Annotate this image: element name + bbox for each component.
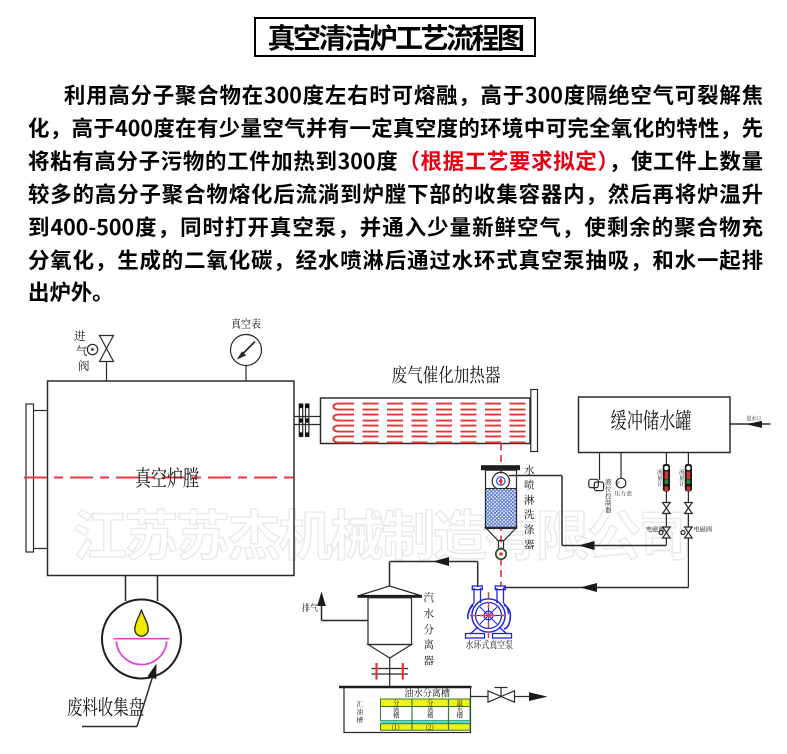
svg-text:器: 器 — [524, 537, 535, 552]
svg-text:压力表: 压力表 — [615, 489, 633, 498]
svg-text:排气: 排气 — [302, 601, 318, 614]
svg-text:器: 器 — [605, 505, 612, 514]
svg-text:(2): (2) — [426, 723, 434, 732]
svg-text:气: 气 — [76, 343, 88, 359]
svg-text:槽: 槽 — [457, 711, 464, 720]
svg-text:缓冲储水罐: 缓冲储水罐 — [611, 405, 692, 436]
svg-text:(1): (1) — [392, 723, 400, 732]
svg-text:计: 计 — [657, 480, 663, 488]
svg-text:器: 器 — [424, 653, 435, 668]
svg-text:槽: 槽 — [393, 711, 400, 720]
svg-text:电磁阀: 电磁阀 — [646, 525, 665, 534]
svg-text:涤: 涤 — [524, 522, 535, 537]
svg-text:进水口: 进水口 — [747, 414, 762, 423]
svg-text:分: 分 — [424, 622, 435, 637]
svg-text:电磁阀: 电磁阀 — [694, 525, 713, 534]
svg-text:真空炉膛: 真空炉膛 — [135, 462, 199, 493]
svg-text:进: 进 — [74, 328, 86, 344]
svg-text:喷: 喷 — [524, 477, 535, 492]
svg-text:槽: 槽 — [357, 715, 364, 724]
svg-text:洗: 洗 — [524, 507, 535, 522]
svg-text:槽: 槽 — [427, 711, 434, 720]
svg-text:离: 离 — [424, 637, 435, 652]
svg-text:汽: 汽 — [424, 590, 435, 605]
svg-text:淋: 淋 — [524, 492, 535, 507]
svg-text:阀: 阀 — [78, 358, 90, 374]
svg-text:废料收集盘: 废料收集盘 — [67, 691, 144, 721]
svg-text:水环式真空泵: 水环式真空泵 — [466, 637, 514, 652]
svg-text:真空表: 真空表 — [231, 316, 261, 332]
svg-text:计: 计 — [679, 480, 685, 488]
svg-text:废气催化加热器: 废气催化加热器 — [392, 361, 501, 388]
svg-text:水: 水 — [424, 606, 435, 621]
svg-text:P: P — [616, 480, 620, 488]
